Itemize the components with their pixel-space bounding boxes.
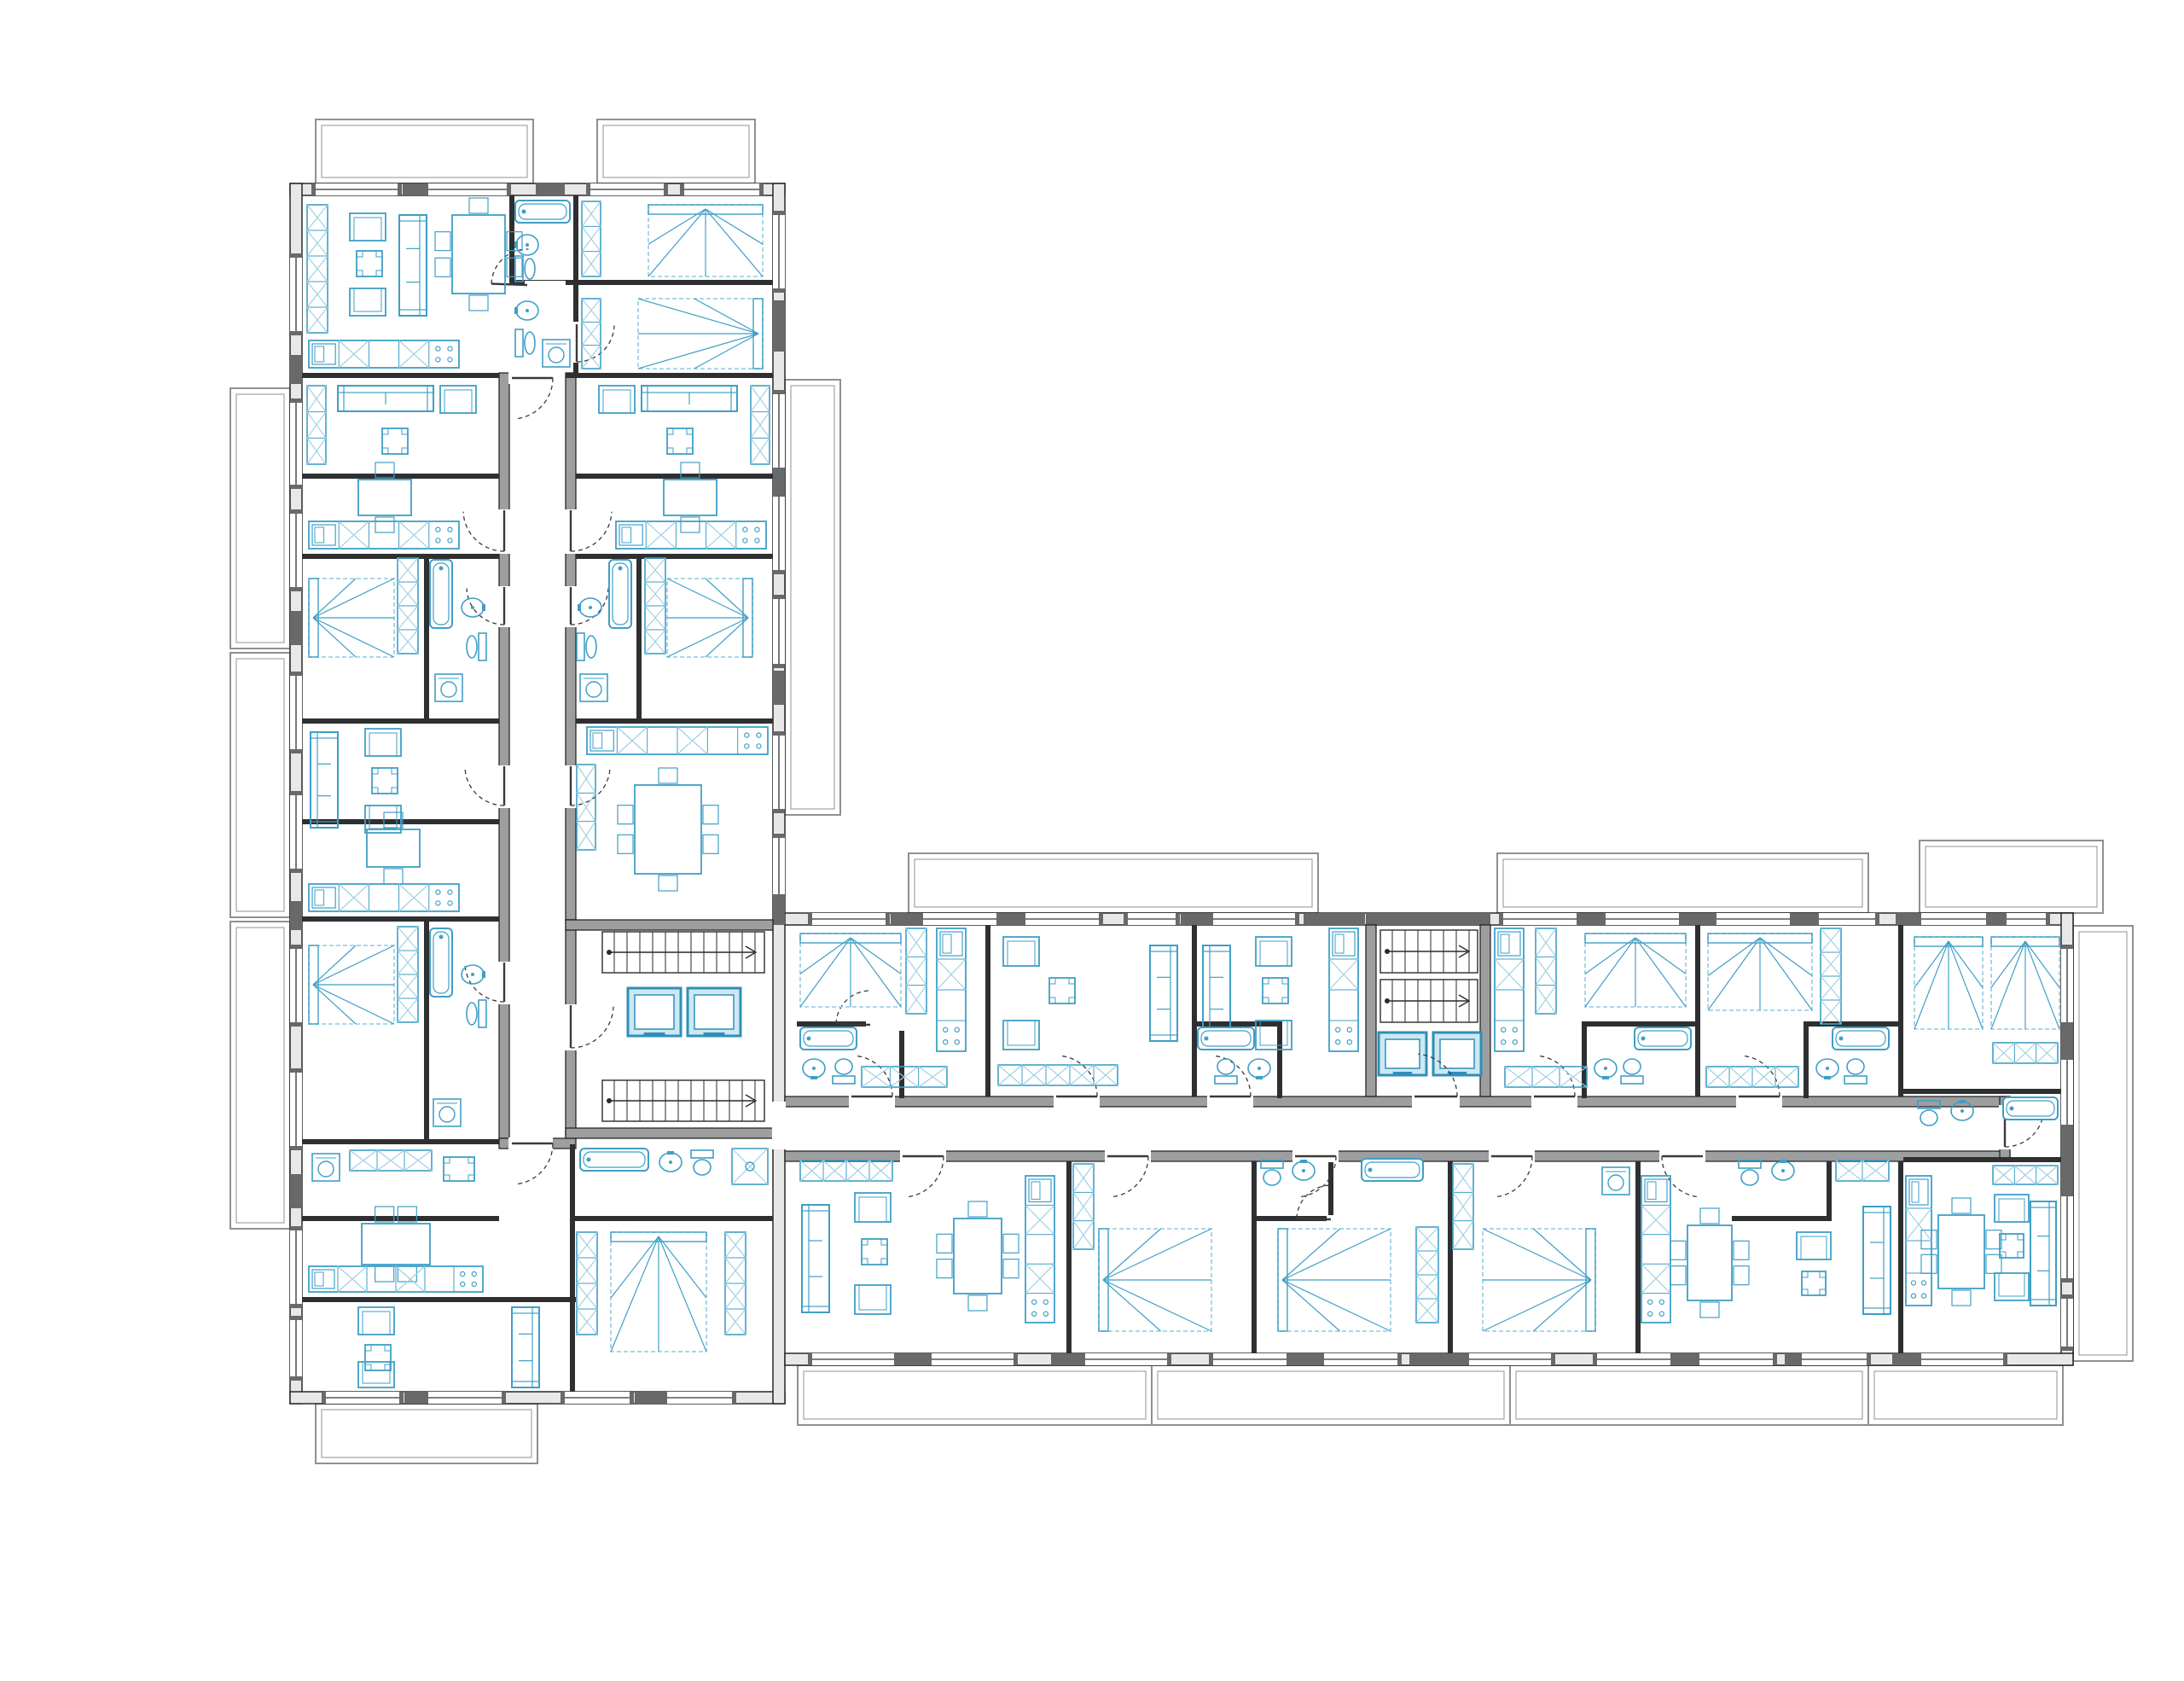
table-leg [385,1345,391,1351]
balcony-outer [597,119,755,183]
partition-wall [566,373,773,378]
tub-symbol [800,1027,857,1050]
table-leg [365,1345,371,1351]
sink-drain [1258,1067,1261,1070]
balcony-inner [236,659,284,911]
washer-drum [318,1161,334,1177]
balcony-outer [230,388,290,649]
bathtub-drain [1205,1037,1209,1041]
dining-chair [703,835,718,853]
window-jamb [1798,1353,1802,1365]
chair-symbol [1995,1273,2029,1300]
wall-pier [891,913,920,925]
wall-pier [897,1353,928,1365]
window-jamb [773,390,785,394]
door-swing [1297,1185,1331,1219]
table-symbol [365,1345,391,1370]
sofa-arm [731,386,737,411]
partition-wall [509,195,514,285]
table-leg [372,788,378,794]
toilet-symbol [1739,1160,1761,1185]
chair-symbol [350,213,386,241]
window-jamb [773,731,785,736]
kitchen-counter [309,521,459,549]
sink-drain [471,606,474,609]
table-leg [1802,1289,1808,1295]
wall-pier [773,898,785,925]
tub-symbol [2003,1097,2058,1120]
table-symbol [1263,978,1288,1003]
sofa-back [338,386,433,393]
window-jamb [290,587,302,591]
sink-drain [471,973,474,976]
sink-symbol [1594,1059,1617,1079]
window [773,595,785,668]
toilet-bowl [1920,1110,1937,1126]
partition-wall [1252,1161,1257,1353]
wall-pier [1181,913,1211,925]
bed-fan-line [1483,1280,1591,1331]
door-arc [855,1056,892,1096]
bed-fan-line [659,1236,706,1298]
stove-burner [955,1027,959,1032]
bed-fan-line [313,985,394,1024]
table-leg [687,448,693,454]
kitchen-sink-bowl [593,733,602,748]
partition-wall [1587,1021,1695,1027]
window-jamb [773,211,785,215]
partition-wall [424,922,429,1139]
bed-fan-line [1914,941,1949,987]
window [2002,913,2050,925]
sink-symbol [1292,1160,1315,1180]
table-leg [357,270,363,276]
corridor-wall [785,1096,2010,1107]
coffee-table-top [444,1157,474,1181]
kitchen-sink-bowl [315,527,324,543]
window [586,183,668,195]
window-jamb [290,509,302,514]
table-leg [392,788,398,794]
balcony-outer [909,853,1318,913]
dining-symbol [1921,1198,2001,1306]
bed-fan-line [694,299,758,334]
dining-chair [659,875,677,891]
sink-faucet [1824,1076,1831,1079]
toilet-bowl [1741,1170,1758,1185]
armchair-seat [369,733,397,756]
tub-symbol [430,560,452,628]
window [290,509,302,591]
stove-burner [757,744,761,748]
window-jamb [1465,1353,1469,1365]
window [808,913,890,925]
toilet-tank [691,1150,713,1158]
bed-fan-line [851,938,901,1007]
window [1124,913,1180,925]
window [290,1068,302,1150]
balcony [2073,926,2133,1361]
wall-pier [1896,913,1918,925]
door-arc [571,512,612,551]
wall-pier [290,901,302,930]
wall-pier [1674,1353,1696,1365]
stove-burner [461,1271,465,1276]
stove-burner [1043,1300,1048,1304]
balconies-layer [230,119,2133,1463]
sink-faucet [1256,1076,1263,1079]
table-leg [667,428,673,434]
shower-symbol [732,1149,768,1184]
bed-fan-line [1708,938,1760,1010]
window-jamb [1875,913,1879,925]
armchair-seat [1801,1236,1827,1259]
bed-fan-line [1483,1229,1591,1280]
table-leg [1263,978,1269,984]
sink-symbol [462,965,485,984]
dining-chair [681,517,700,532]
sofa-arm [399,215,427,221]
armchair-seat [369,806,397,829]
window [1081,1353,1171,1365]
table-leg [468,1175,474,1181]
balcony [1497,853,1868,913]
partition-wall [302,916,499,922]
stove-burner [1921,1281,1926,1285]
bathtub-drain [619,567,623,571]
window-jamb [290,1304,302,1308]
kitchen-symbol [1025,1176,1054,1323]
window-jamb [886,913,890,925]
window-jamb [773,570,785,574]
partition-wall [302,1139,499,1144]
partition-wall [1827,1161,1832,1221]
window-jamb [759,183,764,195]
sofa-symbol [642,386,737,411]
window [290,1226,302,1308]
armchair-seat [363,1362,390,1383]
partition-wall [576,554,773,559]
table-leg [881,1239,887,1245]
partition-wall [1898,925,1903,1096]
window [773,390,785,472]
tub-symbol [1362,1159,1423,1181]
wall-pier [635,1392,664,1404]
window [290,672,302,753]
wardrobe-symbol [307,386,326,464]
window-jamb [290,1068,302,1073]
window-jamb [2061,1125,2073,1129]
wall-pier [290,611,302,645]
window-jamb [1917,1353,1921,1365]
stove-burner [944,1040,948,1044]
door-arc [1111,1156,1148,1197]
table-leg [382,428,388,434]
window [1209,1353,1291,1365]
stove-burner [461,1282,465,1286]
balcony-inner [915,859,1312,907]
window-jamb [2061,1192,2073,1196]
wall-pier [536,183,565,195]
chair-symbol [599,386,635,413]
window-jamb [1124,913,1128,925]
toilet-tank [1844,1076,1867,1084]
sink-symbol [462,598,485,617]
bed-fan-line [1914,941,1949,1029]
chair-symbol [350,288,386,316]
openings-layer [498,281,2011,1225]
toilet-bowl [525,332,535,354]
bed-fan-line [1103,1280,1211,1331]
dining-chair [384,869,403,884]
table-symbol [667,428,693,454]
window-jamb [1679,913,1683,925]
window-jamb [311,183,316,195]
kitchen-sink-bowl [1912,1182,1919,1202]
bed-symbol [309,579,394,657]
window-jamb [290,398,302,403]
sofa-symbol [2030,1201,2056,1306]
coffee-table-top [1049,978,1075,1003]
window [1209,913,1299,925]
window-jamb [773,664,785,668]
balcony-inner [1503,859,1862,907]
door-arc [1297,1185,1331,1219]
balcony-inner [236,394,284,643]
armchair-seat [1999,1273,2024,1296]
window-jamb [1593,1353,1597,1365]
bed-fan-line [611,1236,659,1298]
corridor-wall [566,373,576,920]
wall-opening [525,281,566,291]
stove-burner [1336,1040,1340,1044]
sofa-body [802,1205,829,1312]
window-jamb [2002,913,2007,925]
door-swing [1491,1156,1532,1197]
window-jamb [773,894,785,899]
elevator-cab [694,995,734,1029]
bed-fan-line [313,985,356,1024]
window-jamb [1867,1353,1871,1365]
sink-faucet [578,604,581,611]
wardrobe-symbol [1416,1227,1438,1323]
window [1917,913,1990,925]
window-jamb [1209,1353,1213,1365]
toilet-symbol [467,1000,486,1027]
sink-symbol [514,301,538,320]
wardrobe-symbol [1821,928,1841,1024]
table-symbol [1802,1271,1826,1295]
stove-burner [436,890,440,894]
chair-symbol [365,729,401,756]
balcony [230,922,290,1229]
partition-wall [302,1297,576,1302]
window-jamb [1081,1353,1085,1365]
dining-table [367,829,420,867]
kitchen-sink-bowl [1647,1182,1656,1199]
window-jamb [1712,913,1716,925]
window [773,834,785,899]
dining-chair [1952,1290,1971,1306]
balcony-inner [322,1410,531,1457]
window-jamb [808,913,812,925]
balcony [1920,840,2103,913]
dining-chair [937,1259,952,1278]
wardrobe-symbol [1836,1160,1889,1181]
stove-burner [745,744,749,748]
sink-faucet [1300,1160,1307,1163]
washer-drum [439,1107,455,1122]
elevator [688,988,741,1036]
window-jamb [2061,1056,2073,1060]
table-leg [365,1364,371,1370]
window [311,183,402,195]
kitchen-symbol [1495,928,1524,1051]
door-swing [1534,1056,1575,1096]
wall-pier [1409,1353,1466,1365]
sofa-symbol [802,1205,829,1312]
floorplan-svg [0,0,2184,1681]
dining-chair [1734,1266,1749,1285]
toilet-bowl [1623,1059,1641,1074]
wardrobe-symbol [1993,1166,2058,1184]
table-symbol [372,768,398,794]
sofa-symbol [1150,945,1177,1041]
bed-fan-line [648,209,706,276]
window [919,913,1001,925]
kitchen-symbol [309,1266,483,1292]
window [290,791,302,873]
elevator-cab [1440,1039,1474,1068]
bed-symbol [1914,937,1983,1029]
kitchen-symbol [309,884,459,911]
bed-fan-line [1760,938,1812,1010]
bed-fan-line [1949,941,1983,1029]
wardrobe-symbol [645,558,665,654]
balcony-outer [785,380,840,815]
coffee-table-top [382,428,408,454]
bed-fan-line [800,938,851,1007]
bed-fan-line [313,579,394,618]
bed-fan-line [694,334,758,369]
door-arc [1537,1056,1575,1096]
table-leg [382,448,388,454]
tub-symbol [1833,1027,1889,1050]
door-swing [851,1056,892,1096]
dining-chair [659,768,677,783]
window-jamb [1601,913,1606,925]
bathtub-drain [2010,1107,2014,1111]
tub-symbol [580,1149,648,1171]
sink-drain [1302,1169,1305,1172]
window [290,1316,302,1381]
partition-wall [1066,1161,1072,1353]
balcony [1868,1365,2063,1425]
door-swing [836,991,870,1025]
armchair-seat [1008,1021,1035,1045]
bed-fan-line [1991,941,2025,987]
sink-symbol [803,1059,825,1079]
dining-chair [1003,1234,1019,1253]
table-leg [1820,1289,1826,1295]
window [424,183,511,195]
stove-burner [1501,1040,1506,1044]
door-arc [463,512,504,551]
balcony-inner [236,928,284,1223]
bed-fan-line [659,1236,706,1352]
window-jamb [561,1392,565,1404]
sofa-arm [512,1381,539,1387]
wall-pier [1793,913,1815,925]
toilet-bowl [467,1003,477,1025]
stove-burner [1513,1027,1517,1032]
dining-chair [937,1234,952,1253]
washer-symbol [312,1154,340,1181]
bed-symbol [648,205,763,276]
window-jamb [290,485,302,489]
washer-drum [549,347,564,363]
staircase [1380,980,1478,1022]
wardrobe-symbol [1706,1067,1798,1087]
bed-fan-line [313,945,394,985]
balcony-outer [230,653,290,917]
stove-burner [1043,1312,1048,1316]
coffee-table-top [1263,978,1288,1003]
bed-symbol [800,934,901,1007]
window-jamb [2061,1278,2073,1283]
partition-wall [1732,1216,1832,1221]
toilet-bowl [1263,1170,1281,1185]
sink-symbol [578,598,601,617]
chair-symbol [855,1285,891,1314]
kitchen-sink-bowl [1501,934,1509,953]
stove-burner [1347,1027,1351,1032]
dining-symbol [937,1201,1019,1311]
sofa-symbol [1863,1207,1891,1314]
balcony [230,653,290,917]
balcony-outer [1868,1365,2063,1425]
sofa-arm [1150,1035,1177,1041]
sofa-back [2049,1201,2056,1306]
kitchen-sink-bowl [315,1272,323,1286]
wardrobe-symbol [307,205,328,333]
kitchen-symbol [587,727,768,754]
bathtub-drain [1839,1037,1844,1041]
chair-symbol [358,1307,394,1335]
wall-pier [1682,913,1713,925]
bed-symbol [309,945,394,1024]
table-leg [862,1239,868,1245]
window [1320,1353,1402,1365]
window-jamb [773,834,785,838]
table-leg [402,448,408,454]
sofa-arm [642,386,648,411]
sofa-arm [399,310,427,316]
window-jamb [290,869,302,873]
bed-fan-line [1533,1280,1591,1331]
dining-chair [1734,1241,1749,1259]
window [2061,1294,2073,1351]
window [2061,1192,2073,1283]
wall-pier [1366,913,1490,925]
sink-faucet [1780,1160,1786,1163]
window-jamb [630,1392,634,1404]
window-jamb [2061,945,2073,949]
coffee-table-top [2000,1234,2024,1258]
kitchen-symbol [1329,928,1358,1051]
elevator [1433,1032,1481,1075]
window-jamb [1986,913,1990,925]
